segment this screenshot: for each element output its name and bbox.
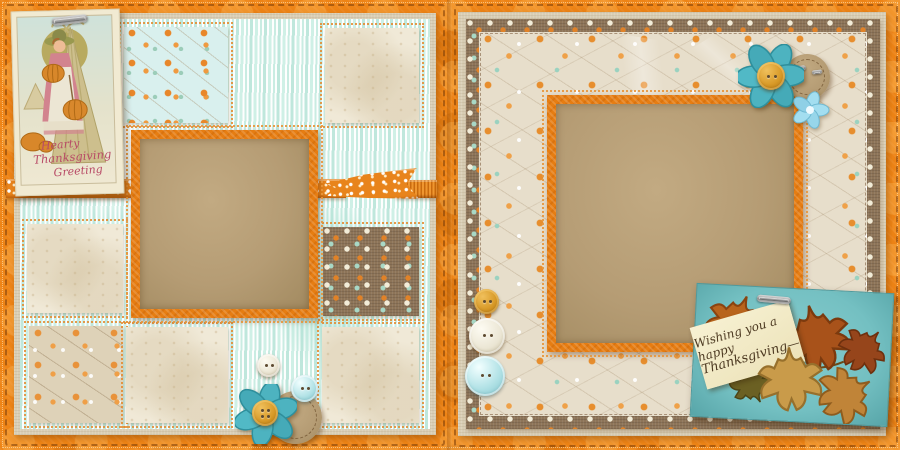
white-button-right [469, 318, 505, 354]
patch-cream-bottom-mid [126, 327, 228, 423]
aqua-button-right [465, 356, 505, 396]
flower-center-button-left [252, 400, 278, 426]
postcard-illustration: Hearty Thanksgiving Greeting [12, 10, 122, 194]
staple-icon [812, 69, 822, 74]
photo-placeholder-left [140, 139, 309, 309]
patch-cream-mid-left [27, 224, 123, 313]
patch-polka-brown [323, 227, 419, 316]
patch-aqua-floral [124, 27, 228, 123]
patch-cream-top-right [325, 28, 419, 123]
leaf-greeting-card: Wishing you a happy Thanksgiving— [690, 283, 895, 427]
patch-tan-floral [29, 326, 123, 423]
blue-flower-small [790, 90, 830, 130]
scrapbook-canvas: Hearty Thanksgiving Greeting [0, 0, 900, 450]
page-seam [447, 0, 452, 450]
photo-frame-left [131, 130, 318, 318]
page-left: Hearty Thanksgiving Greeting [0, 0, 450, 450]
white-button-left [257, 354, 280, 377]
mustard-button-right [474, 289, 499, 314]
flower-center-button-right [757, 62, 785, 90]
postcard: Hearty Thanksgiving Greeting [11, 9, 125, 197]
autumn-leaves-front [691, 284, 894, 426]
patch-cream-bottom-right [322, 327, 419, 423]
